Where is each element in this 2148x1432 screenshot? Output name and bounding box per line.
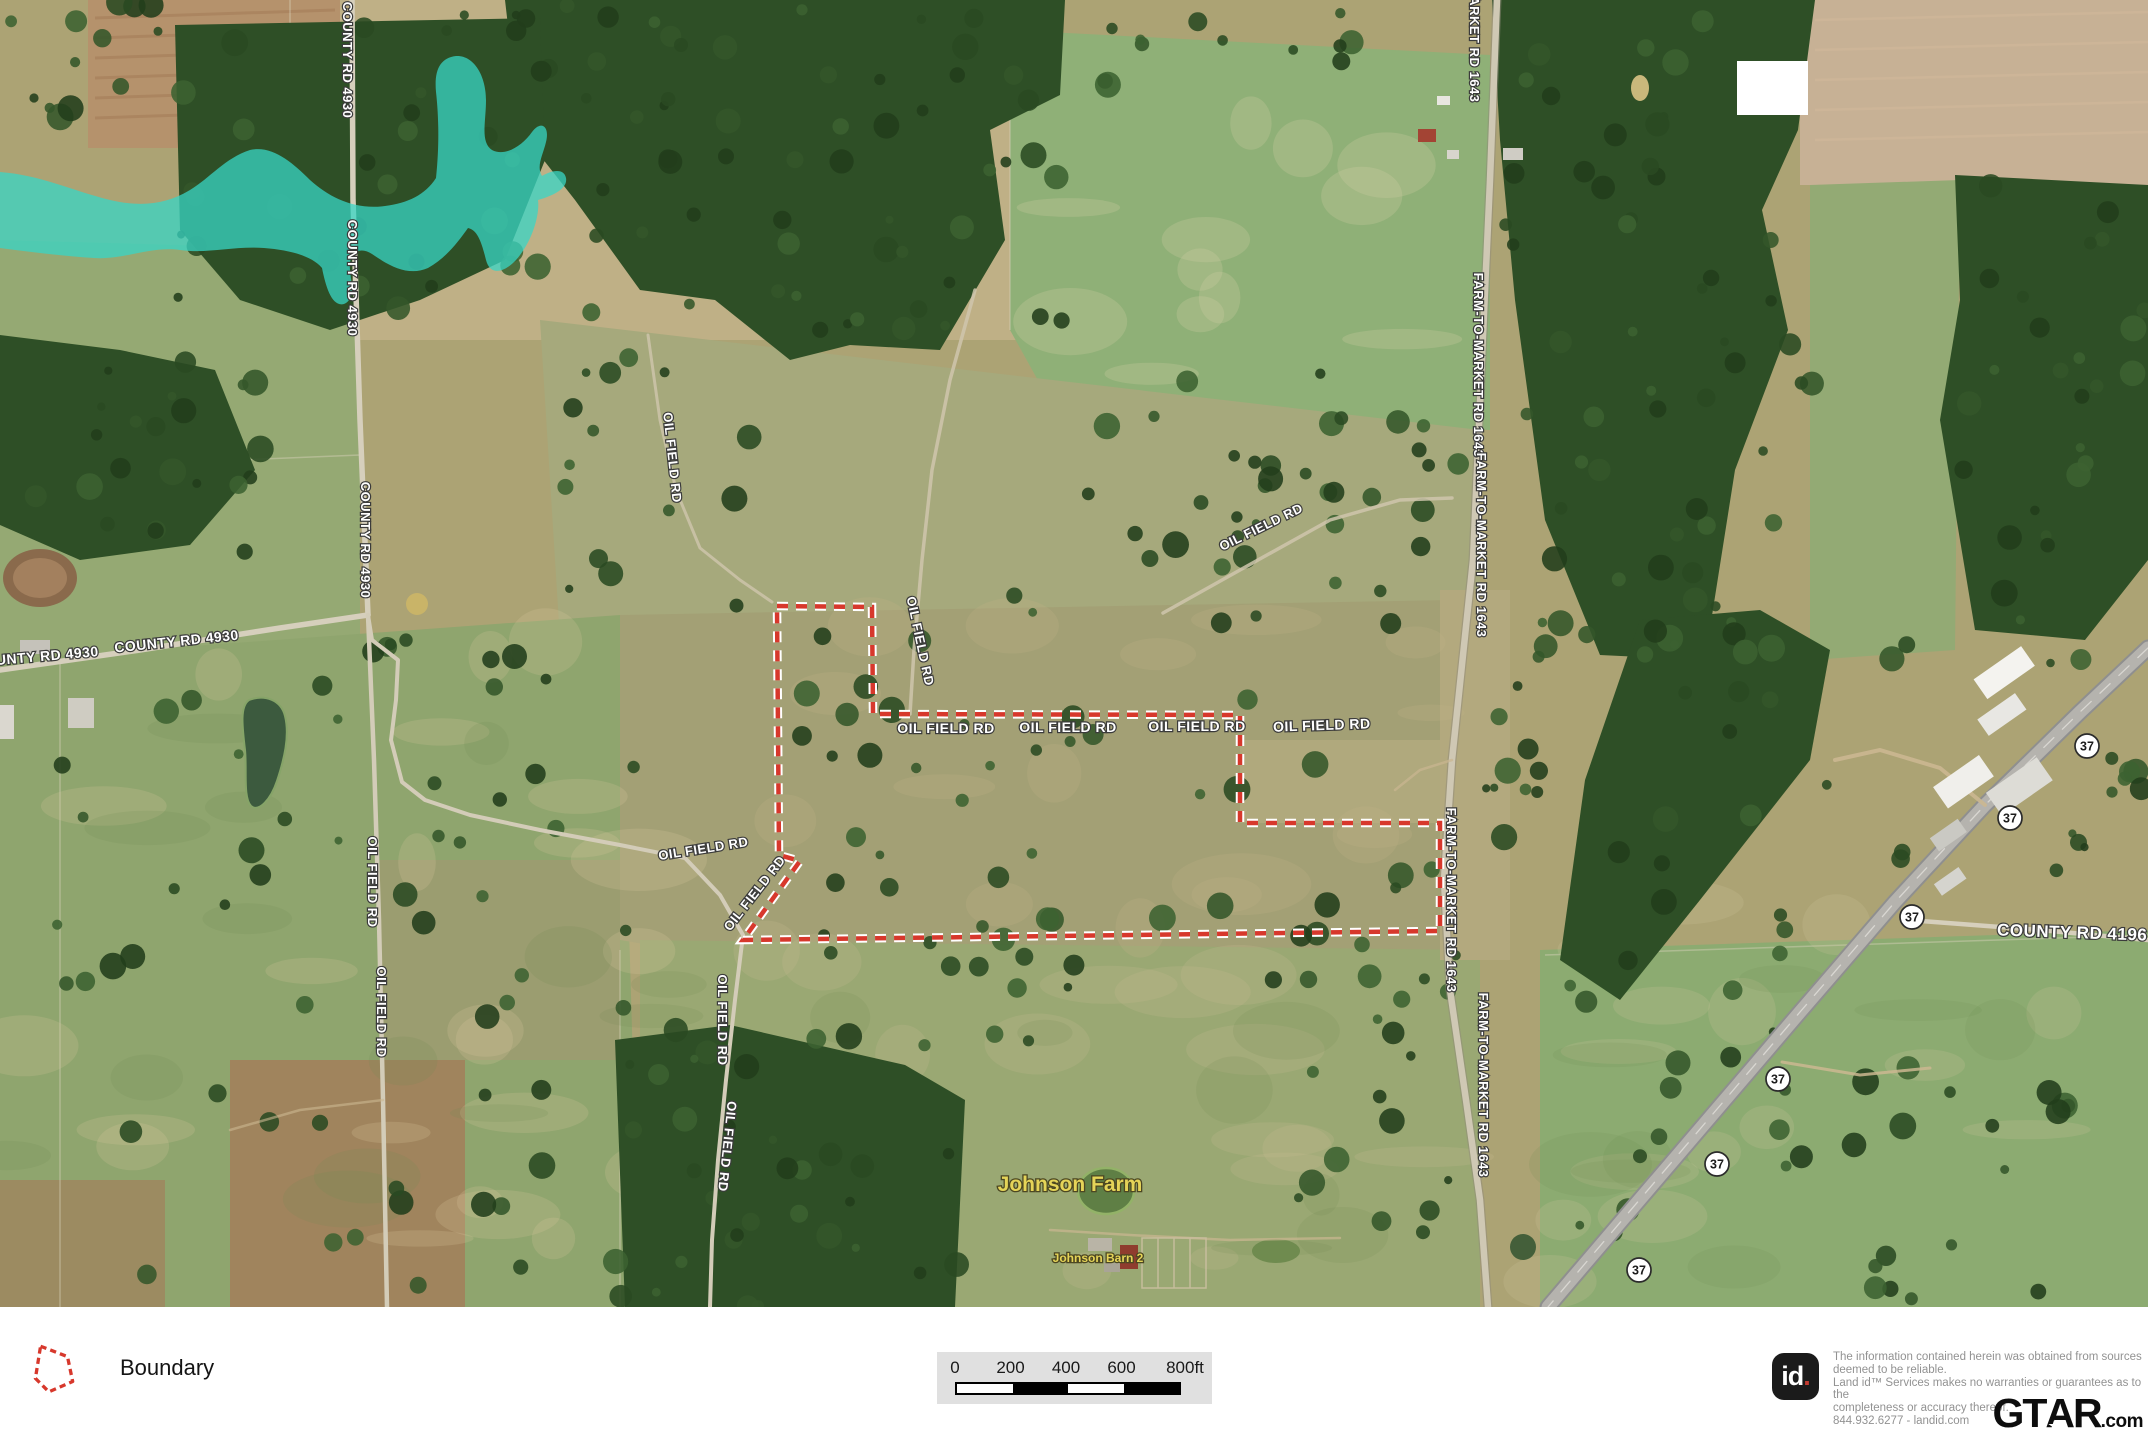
svg-text:COUNTY RD 4930: COUNTY RD 4930 [340,2,355,119]
highway-37-shield: 37 [1900,905,1924,929]
disclaimer-line: The information contained herein was obt… [1833,1351,2143,1364]
svg-text:OIL FIELD RD: OIL FIELD RD [1019,719,1117,735]
svg-text:OIL FIELD RD: OIL FIELD RD [374,967,389,1058]
svg-text:FARM-TO-MARKET RD 1643: FARM-TO-MARKET RD 1643 [1476,993,1491,1178]
boundary-legend-icon [26,1339,80,1397]
landid-logo-dot: . [1803,1361,1810,1392]
svg-text:37: 37 [2003,812,2017,826]
scale-tick: 0 [950,1358,959,1378]
disclaimer-line: deemed to be reliable. [1833,1364,2143,1377]
legend-bar: Boundary 0200400600800ft id. The informa… [0,1307,2148,1432]
landid-logo-text: id [1781,1361,1803,1392]
landid-logo: id. [1772,1353,1819,1400]
svg-text:37: 37 [1632,1264,1646,1278]
gtar-logo: GTA★R.com [1992,1395,2143,1432]
svg-text:OIL FIELD RD: OIL FIELD RD [365,837,380,928]
map-scale-bar: 0200400600800ft [937,1352,1212,1404]
gtar-logo-gt: GT [1992,1395,2045,1431]
svg-text:Johnson Barn 2: Johnson Barn 2 [1053,1251,1144,1265]
highway-37-shield: 37 [1705,1152,1729,1176]
scale-tick: 800ft [1166,1358,1204,1378]
star-icon: ★ [2048,1408,2058,1432]
svg-text:37: 37 [2080,740,2094,754]
gtar-logo-suffix: .com [2101,1411,2143,1432]
svg-text:37: 37 [1710,1158,1724,1172]
svg-text:Johnson Farm: Johnson Farm [998,1173,1143,1196]
redaction-box [1737,61,1808,115]
svg-text:OIL FIELD RD: OIL FIELD RD [1273,715,1371,734]
highway-37-shield: 37 [2075,734,2099,758]
scale-tick: 200 [996,1358,1024,1378]
highway-37-shield: 37 [1998,806,2022,830]
listing-map-page: COUNTY RD 4930COUNTY RD 4930COUNTY RD 49… [0,0,2148,1432]
map-canvas[interactable]: COUNTY RD 4930COUNTY RD 4930COUNTY RD 49… [0,0,2148,1307]
svg-text:COUNTY RD 4930: COUNTY RD 4930 [358,482,373,599]
svg-text:OIL FIELD RD: OIL FIELD RD [1148,718,1246,734]
svg-text:COUNTY RD 4930: COUNTY RD 4930 [345,220,360,337]
scale-segments [955,1382,1181,1395]
highway-37-shield: 37 [1627,1258,1651,1282]
highway-37-shield: 37 [1766,1067,1790,1091]
satellite-map[interactable]: COUNTY RD 4930COUNTY RD 4930COUNTY RD 49… [0,0,2148,1307]
scale-tick: 600 [1107,1358,1135,1378]
svg-text:FARM-TO-MARKET RD 1643: FARM-TO-MARKET RD 1643 [1474,453,1489,638]
svg-text:OIL FIELD RD: OIL FIELD RD [715,975,730,1066]
svg-text:37: 37 [1771,1073,1785,1087]
gtar-logo-r: R [2073,1395,2101,1431]
svg-text:FARM-TO-MARKET RD 1643: FARM-TO-MARKET RD 1643 [1444,808,1459,993]
svg-text:FARM-TO-MARKET RD 1643: FARM-TO-MARKET RD 1643 [1471,273,1486,458]
svg-text:FARM-TO-MARKET RD 1643: FARM-TO-MARKET RD 1643 [1467,0,1482,102]
scale-tick-labels: 0200400600800ft [937,1358,1212,1378]
legend-label-boundary: Boundary [120,1355,214,1381]
legend-item-boundary: Boundary [26,1339,214,1397]
svg-text:OIL FIELD RD: OIL FIELD RD [897,720,995,736]
svg-text:37: 37 [1905,911,1919,925]
scale-tick: 400 [1052,1358,1080,1378]
